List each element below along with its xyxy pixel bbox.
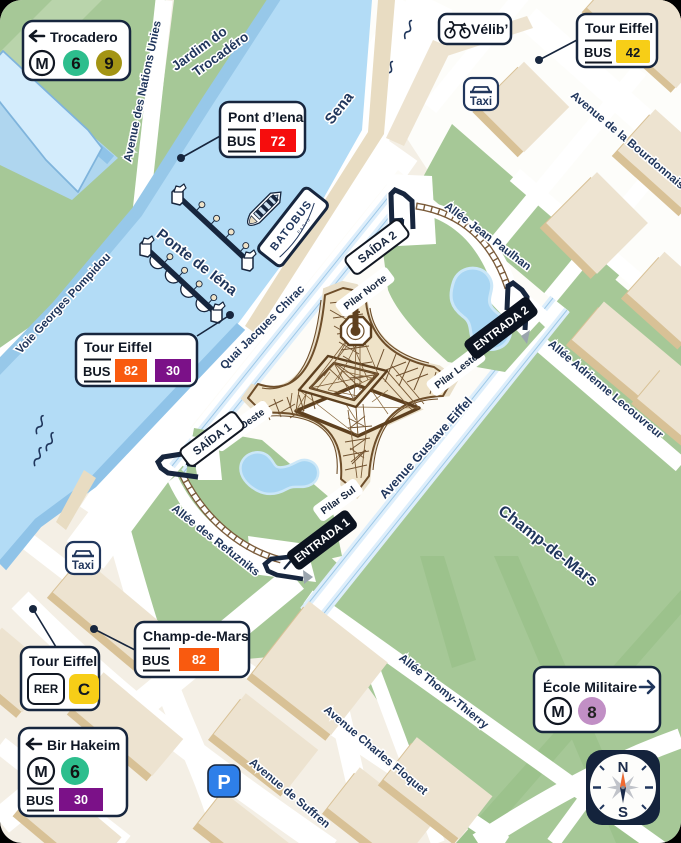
- svg-text:72: 72: [270, 134, 285, 149]
- svg-text:8: 8: [587, 703, 596, 722]
- svg-text:École Militaire: École Militaire: [543, 679, 637, 695]
- svg-text:Tour Eiffel: Tour Eiffel: [29, 653, 97, 669]
- svg-text:Taxi: Taxi: [72, 560, 94, 572]
- svg-text:Champ-de-Mars: Champ-de-Mars: [143, 628, 249, 644]
- svg-text:BUS: BUS: [584, 45, 612, 60]
- svg-text:42: 42: [626, 45, 640, 60]
- svg-text:M: M: [34, 764, 47, 781]
- svg-text:Trocadero: Trocadero: [50, 29, 118, 45]
- svg-text:BUS: BUS: [83, 364, 111, 379]
- svg-text:Tour Eiffel: Tour Eiffel: [585, 20, 653, 36]
- svg-text:N: N: [618, 759, 629, 776]
- svg-text:82: 82: [124, 364, 138, 378]
- svg-text:C: C: [78, 680, 90, 699]
- svg-text:S: S: [618, 804, 628, 821]
- svg-text:Vélib’: Vélib’: [471, 21, 508, 37]
- svg-text:M: M: [35, 56, 48, 73]
- svg-text:30: 30: [74, 793, 88, 807]
- svg-text:82: 82: [192, 653, 206, 667]
- svg-text:M: M: [551, 704, 564, 721]
- svg-text:30: 30: [166, 364, 180, 378]
- svg-text:BUS: BUS: [142, 653, 170, 668]
- svg-text:P: P: [217, 772, 230, 794]
- svg-text:Tour Eiffel: Tour Eiffel: [84, 339, 152, 355]
- svg-text:Bir Hakeim: Bir Hakeim: [47, 737, 120, 753]
- svg-text:6: 6: [70, 762, 80, 782]
- svg-text:RER: RER: [34, 684, 59, 696]
- svg-text:BUS: BUS: [26, 793, 54, 808]
- svg-text:6: 6: [71, 54, 80, 73]
- svg-text:BUS: BUS: [227, 134, 256, 149]
- svg-text:Pont d’Iena: Pont d’Iena: [228, 109, 304, 125]
- svg-text:9: 9: [104, 54, 113, 73]
- svg-text:Taxi: Taxi: [470, 96, 492, 108]
